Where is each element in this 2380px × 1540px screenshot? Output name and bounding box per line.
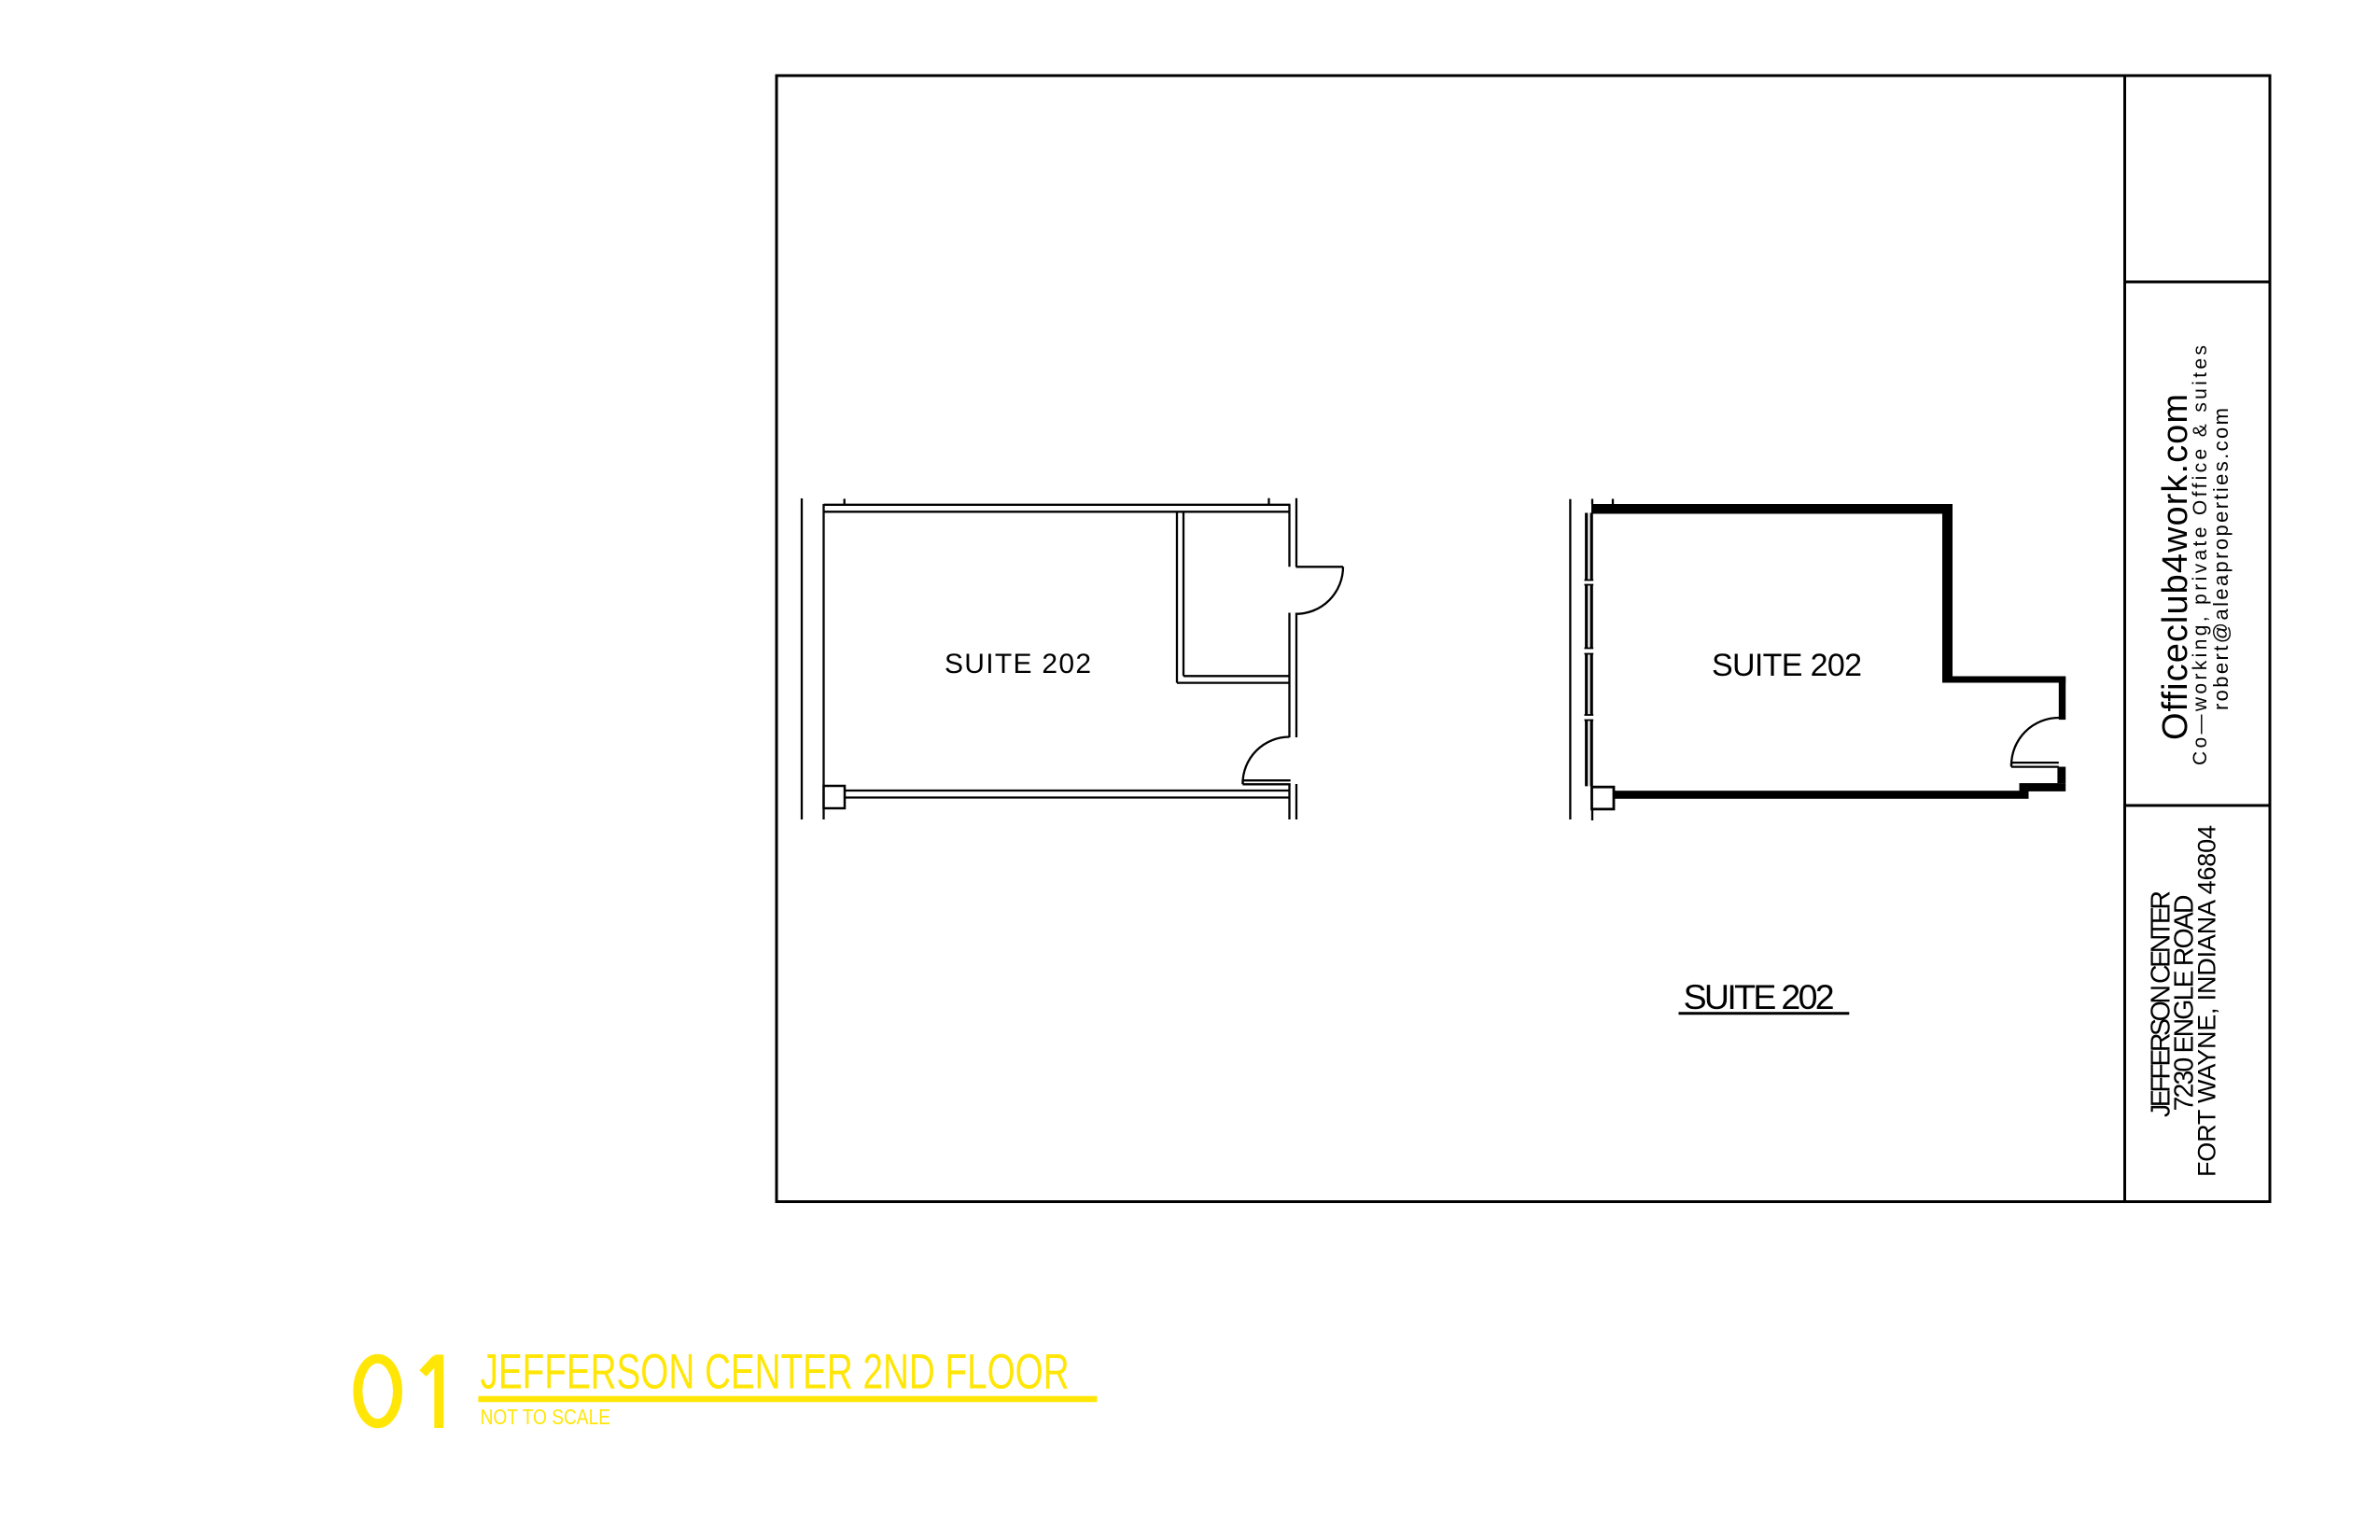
svg-text:FORT WAYNE, INDIANA 46804: FORT WAYNE, INDIANA 46804 <box>2193 825 2221 1177</box>
svg-text:SUITE 202: SUITE 202 <box>1684 977 1835 1016</box>
svg-text:SUITE 202: SUITE 202 <box>1712 648 1862 683</box>
svg-text:Co—working, private Office & s: Co—working, private Office & suites <box>2190 345 2211 765</box>
svg-text:SUITE 202: SUITE 202 <box>945 649 1091 679</box>
svg-text:JEFFERSON CENTER 2ND FLOOR: JEFFERSON CENTER 2ND FLOOR <box>481 1344 1070 1399</box>
svg-text:NOT TO SCALE: NOT TO SCALE <box>481 1405 610 1429</box>
